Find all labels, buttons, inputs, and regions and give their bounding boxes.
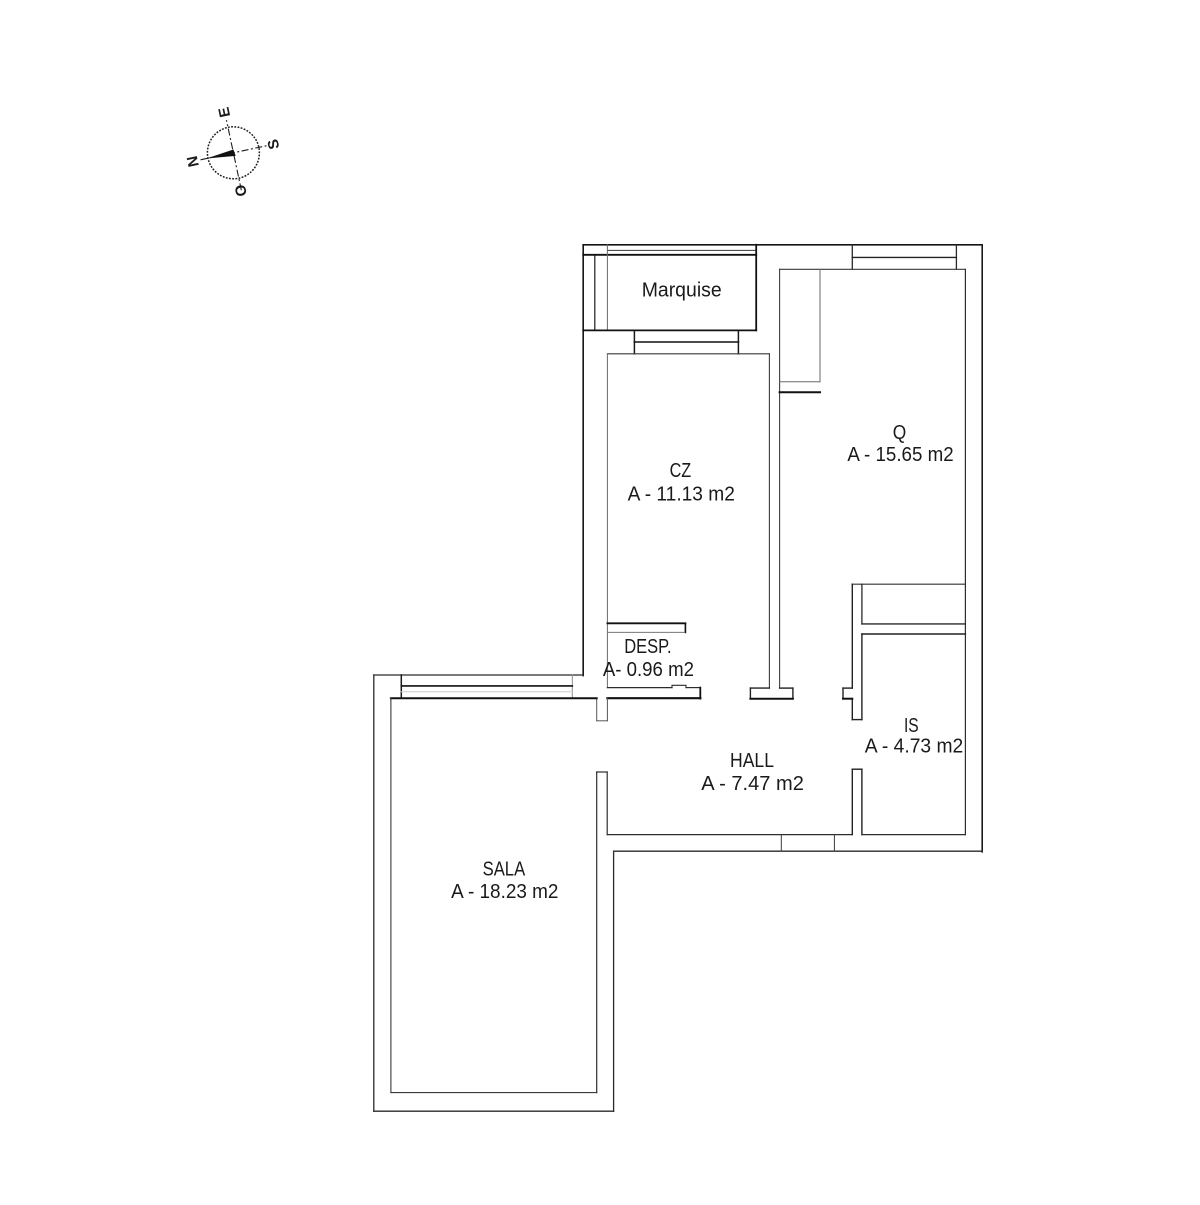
svg-text:A- 0.96 m2: A- 0.96 m2: [603, 659, 694, 681]
svg-text:A - 15.65 m2: A - 15.65 m2: [847, 444, 953, 466]
svg-text:A - 11.13 m2: A - 11.13 m2: [628, 484, 735, 506]
svg-text:A - 4.73 m2: A - 4.73 m2: [865, 736, 964, 758]
svg-text:DESP.: DESP.: [624, 636, 671, 658]
svg-text:Marquise: Marquise: [642, 280, 722, 302]
svg-text:A - 7.47 m2: A - 7.47 m2: [701, 773, 804, 795]
svg-text:SALA: SALA: [483, 859, 526, 881]
svg-text:CZ: CZ: [670, 460, 692, 482]
svg-text:A - 18.23 m2: A - 18.23 m2: [451, 881, 558, 903]
svg-text:IS: IS: [904, 715, 919, 737]
svg-text:HALL: HALL: [730, 750, 774, 772]
svg-text:Q: Q: [893, 422, 907, 444]
